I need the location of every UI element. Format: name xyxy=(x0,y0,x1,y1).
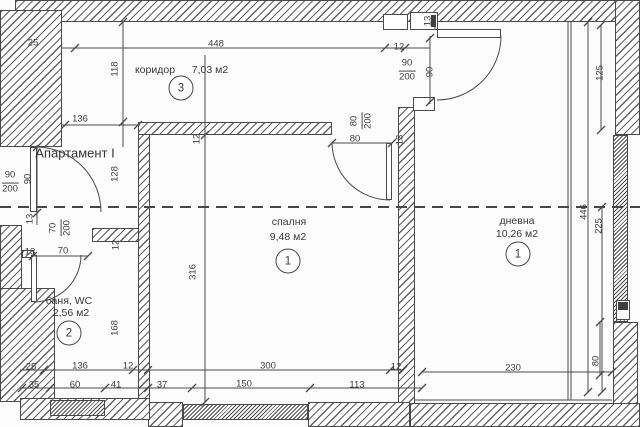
floor-plan: Апартамент I 254481211813613901251280139… xyxy=(0,0,640,427)
dimension-label: 12 xyxy=(394,42,405,52)
door-size-label: 90200 xyxy=(2,171,19,196)
dimension-label: 37 xyxy=(157,380,168,390)
dimension-label: 168 xyxy=(110,320,120,336)
room-area: 10,26 м2 xyxy=(496,229,538,240)
dimension-label: 80 xyxy=(350,134,361,144)
dimension-ticks xyxy=(18,18,616,406)
dimension-label: 12 xyxy=(111,240,121,251)
plan-linework xyxy=(0,0,640,427)
dimension-label: 41 xyxy=(111,380,122,390)
room-area: 9,48 м2 xyxy=(270,232,306,243)
dimension-label: 80 xyxy=(591,356,601,367)
dimension-label: 113 xyxy=(349,380,364,390)
room-area: 2,56 м2 xyxy=(53,308,89,319)
door-size-label: 90200 xyxy=(399,59,416,84)
apartment-title: Апартамент I xyxy=(35,146,114,161)
dimension-label: 316 xyxy=(188,264,198,280)
room-number-badge: 2 xyxy=(57,321,82,346)
room-area: 7,03 м2 xyxy=(192,65,228,76)
dimension-label: 12 xyxy=(391,362,402,372)
door-arc-living xyxy=(437,36,501,100)
dimension-label: 125 xyxy=(595,65,605,81)
dimension-label: 13 xyxy=(423,16,433,27)
room-name: спалня xyxy=(272,217,306,228)
dimension-lines xyxy=(20,22,612,402)
dimension-label: 25 xyxy=(26,362,37,372)
room-number-badge: 3 xyxy=(169,76,194,101)
dimension-label: 13 xyxy=(395,135,405,146)
room-name: дневна xyxy=(500,216,535,227)
dimension-label: 35 xyxy=(29,380,40,390)
dimension-label: 12 xyxy=(123,361,134,371)
room-name: коридор xyxy=(135,65,175,76)
room-number-badge: 1 xyxy=(276,249,301,274)
dimension-label: 225 xyxy=(594,218,604,234)
dimension-label: 13 xyxy=(25,214,35,225)
dimension-label: 13 xyxy=(25,247,36,257)
room-number-badge: 1 xyxy=(506,242,531,267)
dimension-label: 128 xyxy=(110,166,120,182)
dimension-label: 230 xyxy=(505,363,521,373)
dimension-label: 70 xyxy=(58,246,69,256)
dimension-label: 448 xyxy=(208,39,224,49)
door-arc-bedroom xyxy=(332,142,390,200)
dimension-label: 12 xyxy=(192,134,202,145)
room-name: баня, WC xyxy=(46,296,92,307)
dimension-label: 136 xyxy=(72,114,88,124)
dimension-label: 150 xyxy=(236,379,252,389)
dimension-label: 25 xyxy=(28,38,39,48)
dimension-label: 300 xyxy=(260,361,276,371)
dimension-label: 90 xyxy=(23,174,33,185)
dimension-label: 60 xyxy=(70,380,81,390)
dimension-label: 118 xyxy=(110,61,120,76)
door-size-label: 80200 xyxy=(350,113,375,130)
dimension-label: 446 xyxy=(579,204,589,220)
door-size-label: 70200 xyxy=(49,220,74,237)
dimension-label: 90 xyxy=(425,67,435,78)
dimension-label: 136 xyxy=(72,361,88,371)
